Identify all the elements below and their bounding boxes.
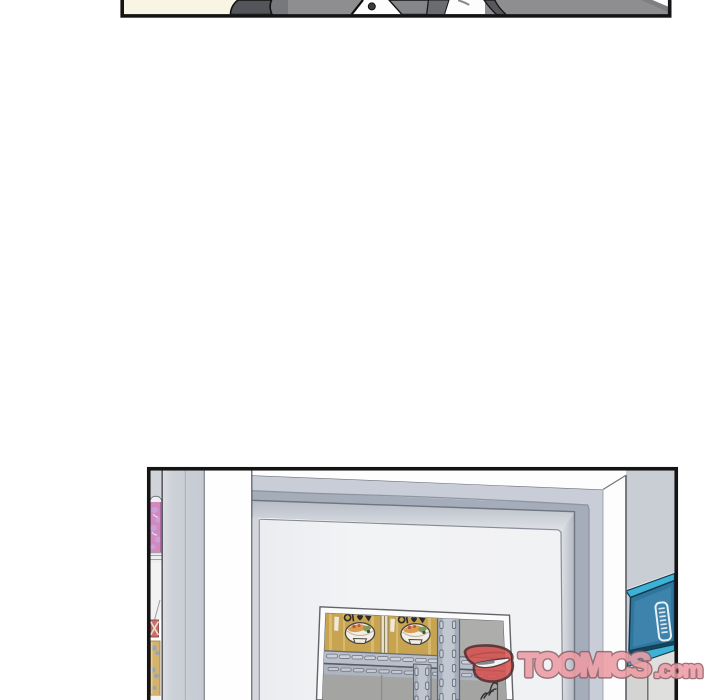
svg-text:.com: .com (654, 657, 702, 682)
svg-text:TOOMICS: TOOMICS (519, 647, 651, 683)
